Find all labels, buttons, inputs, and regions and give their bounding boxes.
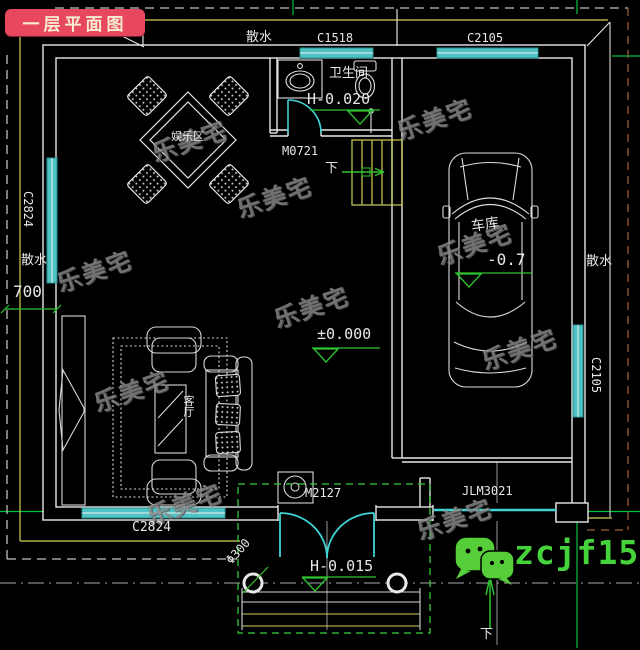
apron-label-right: 散水 (586, 254, 612, 267)
room-label-bathroom: 卫生间 (329, 66, 368, 79)
porch-steps (242, 588, 420, 630)
window-c1518-top (300, 48, 373, 58)
stair-down-label: 下 (325, 161, 338, 174)
slope-down-arrow (486, 577, 494, 629)
window-label-c2105-right: C2105 (590, 357, 602, 393)
wechat-icon (455, 537, 514, 585)
title-badge: 一层平面图 (5, 9, 145, 36)
level-label-garage: -0.7 (487, 252, 526, 268)
windows (47, 48, 583, 518)
door-label-m2127: M2127 (305, 487, 341, 499)
room-label-garage: 车库 (470, 215, 500, 233)
stair-down-arrow (342, 168, 384, 176)
room-label-entertainment: 娱乐区 (171, 132, 204, 143)
window-c2105-right (573, 325, 583, 417)
room-label-living: 客厅 (182, 395, 193, 417)
apron-label-left: 散水 (21, 253, 47, 266)
apron-label-top: 散水 (246, 30, 272, 43)
tv-cabinet (59, 316, 85, 505)
wechat-id: zcjf159 (514, 533, 640, 572)
floor-plan-canvas: 乐美宅 乐美宅 乐美宅 乐美宅 乐美宅 乐美宅 乐美宅 乐美宅 乐美宅 乐美宅 … (0, 0, 640, 650)
sofa (204, 356, 252, 471)
dimension-700 (1, 305, 61, 313)
level-label-floor: ±0.000 (317, 327, 371, 342)
window-label-c2105-top: C2105 (467, 32, 503, 44)
window-c2105-top (437, 48, 538, 58)
dimension-700-label: 700 (13, 284, 42, 300)
level-label-porch: H-0.015 (310, 559, 373, 574)
slope-down-label: 下 (480, 627, 493, 640)
level-label-bathroom: H-0.020 (307, 92, 370, 107)
door-label-m0721: M0721 (282, 145, 318, 157)
porch-column-right (388, 574, 406, 592)
window-label-c2824-bottom: C2824 (132, 521, 171, 534)
window-label-c1518: C1518 (317, 32, 353, 44)
door-label-jlm3021: JLM3021 (462, 485, 513, 497)
window-label-c2824-left: C2824 (22, 191, 34, 227)
walls (43, 45, 588, 522)
